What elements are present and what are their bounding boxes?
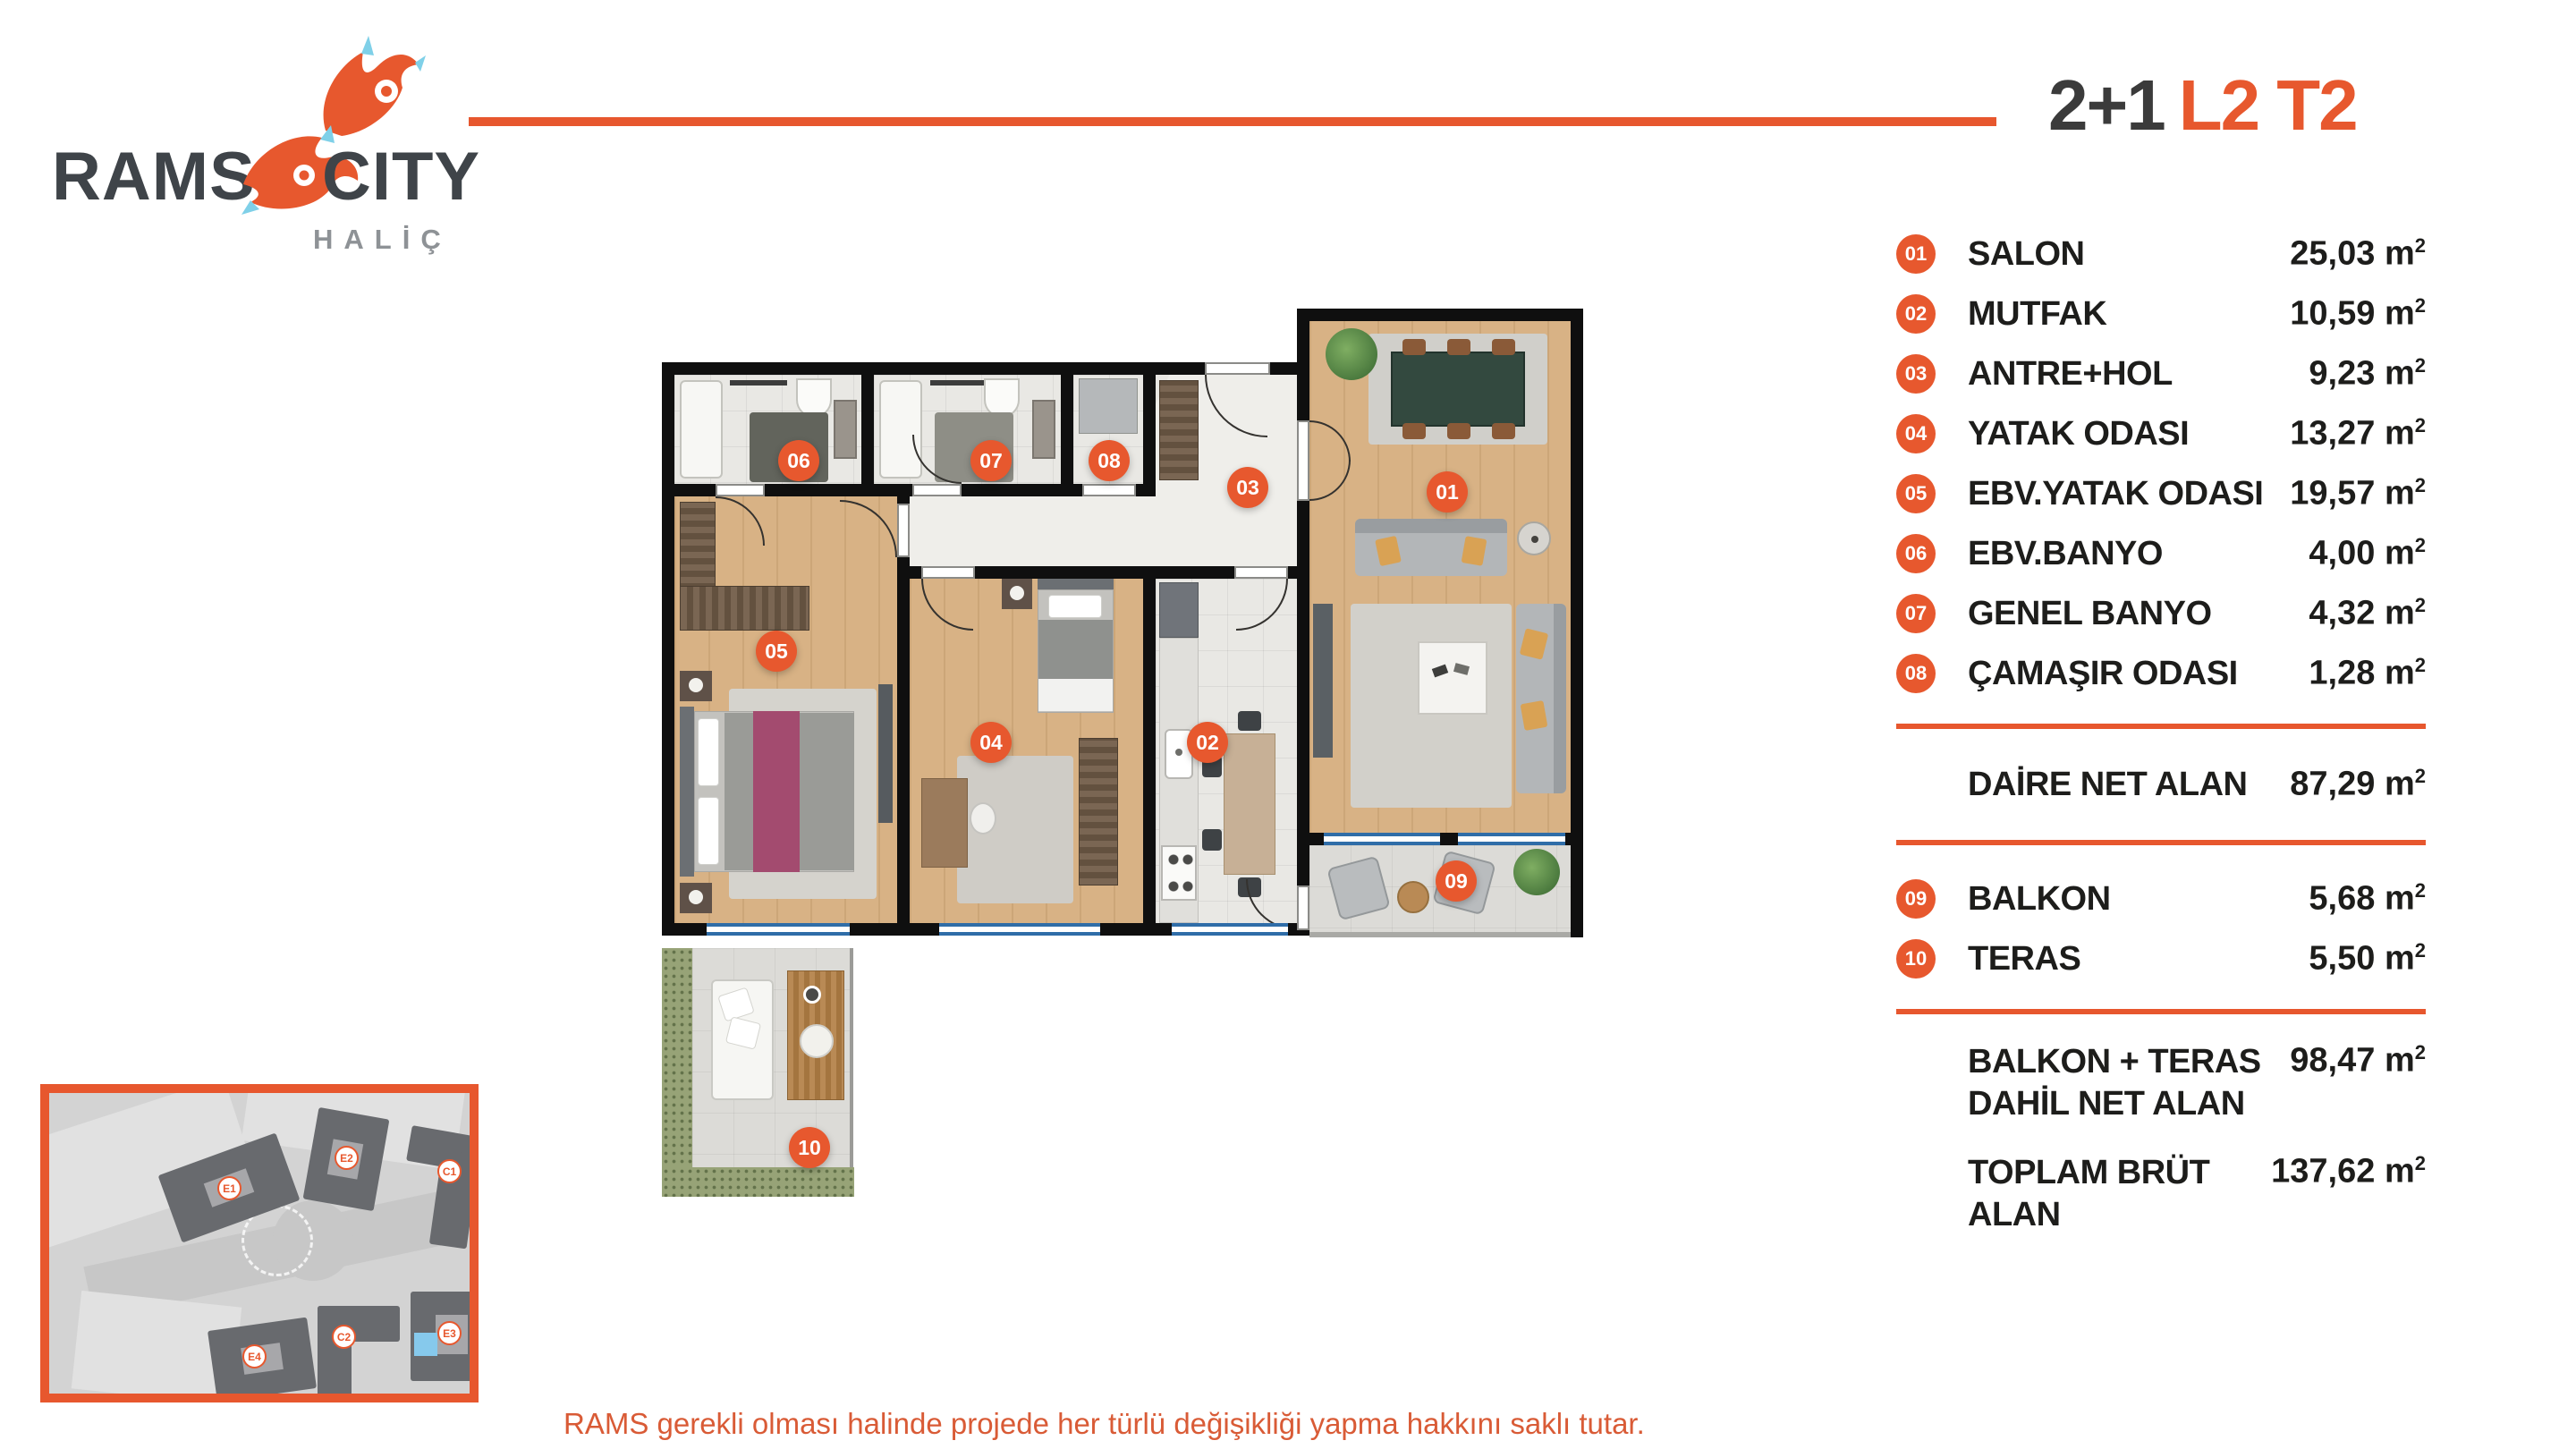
legend-row: 01 SALON 25,03 m2: [1896, 234, 2426, 274]
window: [707, 923, 850, 936]
legend-label: BALKON: [1968, 880, 2111, 919]
dining-chair: [1447, 423, 1470, 439]
unit-exp: 2: [2415, 234, 2426, 257]
salon-door-frame: [1297, 420, 1309, 501]
legend-label: GENEL BANYO: [1968, 595, 2212, 633]
door-frame: [897, 504, 910, 557]
legend-row: 10 TERAS 5,50 m2: [1896, 939, 2426, 979]
legend-value: 19,57 m2: [2290, 474, 2426, 513]
brand-logo: RAMS CITY HALİÇ: [52, 131, 517, 309]
terrace-area: 10: [662, 948, 859, 1199]
sofa-pillow: [1521, 700, 1548, 731]
door-frame: [1234, 566, 1288, 579]
bathroom-vanity: [1032, 400, 1055, 459]
page: RAMS CITY HALİÇ 2+1L2 T2: [0, 0, 2576, 1449]
unit-type: 2+1: [2048, 65, 2165, 145]
dining-chair: [1447, 339, 1470, 355]
coffee-table: [1418, 641, 1487, 715]
wall: [765, 484, 912, 496]
building-label-e1: E1: [217, 1176, 241, 1200]
plant: [1326, 328, 1377, 380]
floor-plan: 01 02 03 04 05 06 07 08 09: [662, 309, 1583, 948]
unit: m: [2385, 475, 2415, 513]
unit-code: L2 T2: [2179, 65, 2357, 145]
legend-label: SALON: [1968, 235, 2085, 274]
hedge: [662, 948, 692, 1172]
net-area-label: DAİRE NET ALAN: [1968, 766, 2247, 804]
legend-badge: 03: [1896, 354, 1936, 394]
bed-headboard: [680, 707, 694, 877]
unit: m: [2385, 1042, 2415, 1080]
sofa-pillow: [1462, 536, 1487, 566]
total-label: TOPLAM BRÜT ALAN: [1968, 1152, 2271, 1236]
dining-chair: [1492, 339, 1515, 355]
hall-wardrobe: [1159, 380, 1199, 480]
unit-exp: 2: [2415, 594, 2426, 616]
legend-value: 10,59 m2: [2290, 294, 2426, 334]
bed-headboard: [1038, 577, 1114, 589]
legend-label: EBV.YATAK ODASI: [1968, 475, 2263, 513]
floor-lamp-bulb: [1531, 536, 1538, 543]
header-divider-line: [469, 117, 1996, 126]
unit-exp: 2: [2415, 534, 2426, 556]
unit-exp: 2: [2415, 939, 2426, 962]
lamp: [1010, 586, 1024, 600]
bathroom-vanity: [834, 400, 857, 459]
legend-badge: 01: [1896, 234, 1936, 274]
legend-row: 06 EBV.BANYO 4,00 m2: [1896, 534, 2426, 573]
door-frame: [921, 566, 975, 579]
unit: m: [2385, 295, 2415, 333]
window: [1172, 923, 1288, 936]
sink-faucet: [1175, 749, 1182, 756]
tv-panel: [878, 684, 893, 823]
plant: [1513, 849, 1560, 895]
window: [1458, 833, 1565, 845]
bed-runner: [753, 711, 800, 872]
dining-chair: [1492, 423, 1515, 439]
kitchen-chair: [1238, 711, 1261, 731]
area-number: 5,68: [2309, 880, 2375, 918]
legend-row: 03 ANTRE+HOL 9,23 m2: [1896, 354, 2426, 394]
unit: m: [2385, 655, 2415, 692]
tv-unit: [1313, 604, 1333, 758]
building-label-e4: E4: [242, 1344, 267, 1368]
room-badge-camasir: 08: [1089, 440, 1130, 481]
bed-blanket: [1038, 620, 1113, 679]
wall: [662, 923, 707, 936]
area-number: 98,47: [2290, 1042, 2375, 1080]
room-badge-yatak: 04: [970, 722, 1012, 763]
building-label-e3: E3: [437, 1321, 462, 1345]
window: [1324, 833, 1440, 845]
bathtub: [680, 380, 723, 479]
room-badge-teras: 10: [789, 1127, 830, 1168]
wardrobe: [1079, 738, 1118, 885]
desk: [921, 778, 968, 868]
wall: [975, 566, 1234, 579]
wall: [1143, 579, 1156, 936]
wall: [662, 362, 1205, 375]
unit-exp: 2: [2415, 1041, 2426, 1063]
net-area-value: 87,29 m2: [2290, 765, 2426, 804]
window: [939, 923, 1100, 936]
wall: [897, 557, 910, 936]
desk-chair: [970, 802, 996, 835]
unit-exp: 2: [2415, 1152, 2426, 1174]
towel-rail: [930, 380, 987, 386]
room-badge-ebv-banyo: 06: [778, 440, 819, 481]
legend-badge: 10: [1896, 939, 1936, 979]
unit-exp: 2: [2415, 294, 2426, 317]
unit: m: [2385, 940, 2415, 978]
legend-badge: 09: [1896, 879, 1936, 919]
unit: m: [2385, 880, 2415, 918]
door-frame: [716, 484, 765, 496]
area-number: 1,28: [2309, 655, 2375, 692]
washing-machine: [1079, 378, 1138, 434]
area-number: 9,23: [2309, 355, 2375, 393]
wall: [1297, 309, 1309, 420]
area-number: 87,29: [2290, 766, 2375, 803]
unit-exp: 2: [2415, 765, 2426, 787]
bed-sheet: [1038, 679, 1113, 711]
area-number: 4,32: [2309, 595, 2375, 632]
lamp: [689, 890, 703, 904]
area-number: 137,62: [2271, 1153, 2375, 1191]
legend-value: 25,03 m2: [2290, 234, 2426, 274]
brand-city-text: CITY: [322, 143, 480, 211]
door-frame: [912, 484, 962, 496]
fridge: [1159, 582, 1199, 638]
legend-divider: [1896, 1009, 2426, 1014]
legend-badge: 07: [1896, 594, 1936, 633]
legend-badge: 06: [1896, 534, 1936, 573]
net-area-row: DAİRE NET ALAN 87,29 m2: [1896, 765, 2426, 804]
hedge: [662, 1167, 854, 1197]
unit: m: [2385, 415, 2415, 453]
room-badge-antre: 03: [1227, 467, 1268, 508]
total-row: TOPLAM BRÜT ALAN 137,62 m2: [1896, 1152, 2426, 1236]
highlighted-unit: [414, 1333, 437, 1356]
area-number: 4,00: [2309, 535, 2375, 572]
disclaimer: RAMS gerekli olması halinde projede her …: [563, 1401, 2044, 1449]
towel-rail: [730, 380, 787, 386]
entry-door-frame: [1205, 362, 1270, 375]
site-plan-map: E1 E2 C1 E4 C2 E3: [40, 1084, 479, 1402]
room-badge-balkon: 09: [1436, 860, 1477, 902]
balcony-table: [1397, 881, 1429, 913]
wall: [1288, 566, 1297, 579]
kitchen-chair: [1202, 829, 1222, 851]
disclaimer-line-1: RAMS gerekli olması halinde projede her …: [563, 1401, 2044, 1448]
wall: [1309, 833, 1324, 845]
area-number: 5,50: [2309, 940, 2375, 978]
wall: [1100, 923, 1172, 936]
plate: [800, 1024, 834, 1058]
legend-label: ÇAMAŞIR ODASI: [1968, 655, 2238, 693]
legend-value: 1,28 m2: [2309, 654, 2426, 693]
wall: [1571, 309, 1583, 937]
dining-table: [1391, 352, 1525, 427]
legend-divider: [1896, 840, 2426, 845]
area-number: 10,59: [2290, 295, 2375, 333]
legend-label: TERAS: [1968, 940, 2080, 979]
lamp: [689, 678, 703, 692]
legend-row: 02 MUTFAK 10,59 m2: [1896, 294, 2426, 334]
legend-row: 07 GENEL BANYO 4,32 m2: [1896, 594, 2426, 633]
pillow: [1048, 595, 1102, 618]
pillow: [698, 797, 719, 865]
room-badge-mutfak: 02: [1187, 722, 1228, 763]
legend-value: 5,50 m2: [2309, 939, 2426, 979]
chaise-back: [1554, 604, 1566, 793]
room-badge-ebv-yatak: 05: [756, 631, 797, 672]
pillow: [698, 718, 719, 786]
legend-badge: 02: [1896, 294, 1936, 334]
unit-exp: 2: [2415, 354, 2426, 377]
balcony-railing: [1309, 932, 1571, 937]
legend-row: 04 YATAK ODASI 13,27 m2: [1896, 414, 2426, 453]
dining-chair: [1402, 339, 1426, 355]
wall: [1297, 833, 1309, 885]
terrace-railing: [850, 948, 853, 1167]
building-label-c1: C1: [437, 1159, 462, 1183]
kitchen-table: [1224, 733, 1275, 875]
total-value: 98,47 m2: [2290, 1041, 2426, 1080]
wall: [1061, 362, 1073, 496]
total-label: BALKON + TERAS DAHİL NET ALAN: [1968, 1041, 2290, 1125]
legend-value: 4,32 m2: [2309, 594, 2426, 633]
legend-badge: 05: [1896, 474, 1936, 513]
total-value: 137,62 m2: [2271, 1152, 2426, 1191]
wall: [1297, 309, 1583, 321]
unit-exp: 2: [2415, 879, 2426, 902]
unit: m: [2385, 355, 2415, 393]
room-badge-genel-banyo: 07: [970, 440, 1012, 481]
balcony-door-frame: [1297, 885, 1309, 930]
brand-subtitle: HALİÇ: [313, 224, 452, 256]
room-badge-salon: 01: [1427, 471, 1468, 513]
unit: m: [2385, 595, 2415, 632]
legend-row: 09 BALKON 5,68 m2: [1896, 879, 2426, 919]
building-c2-wing: [318, 1306, 352, 1397]
building-label-c2: C2: [332, 1325, 356, 1349]
wall: [662, 362, 674, 936]
area-number: 19,57: [2290, 475, 2375, 513]
legend-label: ANTRE+HOL: [1968, 355, 2173, 394]
wall: [850, 923, 939, 936]
wall: [674, 484, 716, 496]
wall: [1297, 501, 1309, 833]
legend-row: 08 ÇAMAŞIR ODASI 1,28 m2: [1896, 654, 2426, 693]
unit: m: [2385, 766, 2415, 803]
legend-badge: 08: [1896, 654, 1936, 693]
unit-exp: 2: [2415, 414, 2426, 436]
legend-value: 5,68 m2: [2309, 879, 2426, 919]
wall: [897, 496, 910, 504]
wall: [1440, 833, 1458, 845]
stove: [1161, 845, 1197, 901]
unit: m: [2385, 235, 2415, 273]
dining-chair: [1402, 423, 1426, 439]
corridor-floor: [897, 496, 1156, 566]
unit-exp: 2: [2415, 474, 2426, 496]
area-number: 25,03: [2290, 235, 2375, 273]
wall: [1565, 833, 1571, 845]
bathtub: [879, 380, 922, 479]
total-row: BALKON + TERAS DAHİL NET ALAN 98,47 m2: [1896, 1041, 2426, 1125]
legend: 01 SALON 25,03 m2 02 MUTFAK 10,59 m2 03 …: [1896, 234, 2426, 1236]
legend-value: 13,27 m2: [2290, 414, 2426, 453]
unit-title: 2+1L2 T2: [2048, 64, 2357, 147]
unit-exp: 2: [2415, 654, 2426, 676]
building-label-e2: E2: [335, 1146, 359, 1170]
sofa-back: [1355, 519, 1507, 533]
legend-row: 05 EBV.YATAK ODASI 19,57 m2: [1896, 474, 2426, 513]
legend-label: YATAK ODASI: [1968, 415, 2189, 453]
unit: m: [2385, 535, 2415, 572]
wardrobe: [680, 586, 809, 631]
legend-label: EBV.BANYO: [1968, 535, 2163, 573]
wall: [861, 362, 874, 496]
legend-badge: 04: [1896, 414, 1936, 453]
plate-small: [803, 986, 821, 1004]
legend-value: 4,00 m2: [2309, 534, 2426, 573]
unit: m: [2385, 1153, 2415, 1191]
legend-value: 9,23 m2: [2309, 354, 2426, 394]
legend-label: MUTFAK: [1968, 295, 2106, 334]
area-number: 13,27: [2290, 415, 2375, 453]
wall: [1143, 362, 1156, 496]
door-frame: [1082, 484, 1136, 496]
legend-divider: [1896, 724, 2426, 729]
